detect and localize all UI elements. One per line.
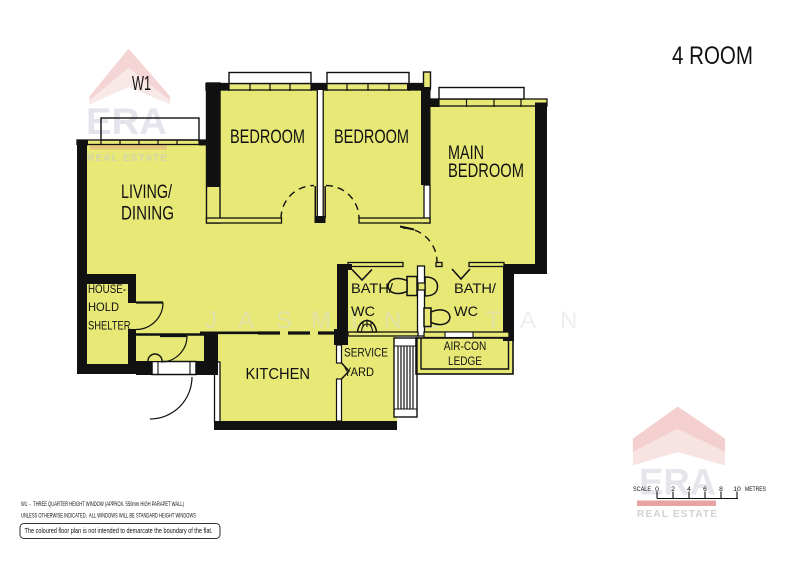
svg-text:METRES: METRES bbox=[745, 486, 766, 493]
svg-text:KITCHEN: KITCHEN bbox=[246, 366, 311, 383]
svg-text:W1: W1 bbox=[132, 73, 151, 95]
svg-text:N: N bbox=[384, 307, 401, 334]
svg-text:The coloured floor plan is not: The coloured floor plan is not intended … bbox=[25, 526, 213, 535]
svg-text:BEDROOM: BEDROOM bbox=[230, 127, 305, 148]
svg-text:A: A bbox=[238, 307, 254, 334]
svg-text:BATH/: BATH/ bbox=[454, 280, 496, 296]
svg-text:W1 - THREE QUARTER HEIGHT WI: W1 - THREE QUARTER HEIGHT WINDOW (APPROX… bbox=[21, 501, 184, 508]
svg-text:REAL ESTATE: REAL ESTATE bbox=[87, 153, 167, 164]
svg-text:SCALE: SCALE bbox=[633, 486, 651, 493]
svg-text:LEDGE: LEDGE bbox=[448, 356, 482, 368]
svg-text:REAL ESTATE: REAL ESTATE bbox=[637, 509, 717, 520]
svg-text:WC: WC bbox=[454, 303, 478, 319]
svg-text:WC: WC bbox=[351, 303, 375, 319]
svg-text:J: J bbox=[205, 307, 217, 334]
svg-text:ERA: ERA bbox=[86, 101, 167, 142]
svg-text:T: T bbox=[486, 307, 501, 334]
svg-text:AIR-CON: AIR-CON bbox=[444, 341, 487, 353]
svg-text:BEDROOM: BEDROOM bbox=[334, 127, 409, 148]
svg-text:A: A bbox=[520, 307, 536, 334]
svg-text:4 ROOM: 4 ROOM bbox=[672, 42, 753, 70]
svg-text:M: M bbox=[311, 307, 331, 334]
svg-text:HOUSE-: HOUSE- bbox=[88, 282, 126, 296]
svg-text:YARD: YARD bbox=[344, 367, 374, 379]
svg-text:S: S bbox=[276, 307, 292, 334]
svg-text:SERVICE: SERVICE bbox=[344, 348, 388, 360]
svg-text:BATH/: BATH/ bbox=[351, 280, 393, 296]
svg-text:UNLESS OTHERWISE INDICATED, A: UNLESS OTHERWISE INDICATED, ALL WINDOWS … bbox=[21, 513, 196, 520]
svg-text:HOLD: HOLD bbox=[88, 300, 119, 314]
svg-text:N: N bbox=[560, 307, 577, 334]
svg-text:SHELTER: SHELTER bbox=[88, 319, 131, 333]
svg-text:BEDROOM: BEDROOM bbox=[448, 161, 524, 182]
svg-text:DINING: DINING bbox=[121, 204, 174, 225]
svg-text:LIVING/: LIVING/ bbox=[121, 182, 173, 203]
